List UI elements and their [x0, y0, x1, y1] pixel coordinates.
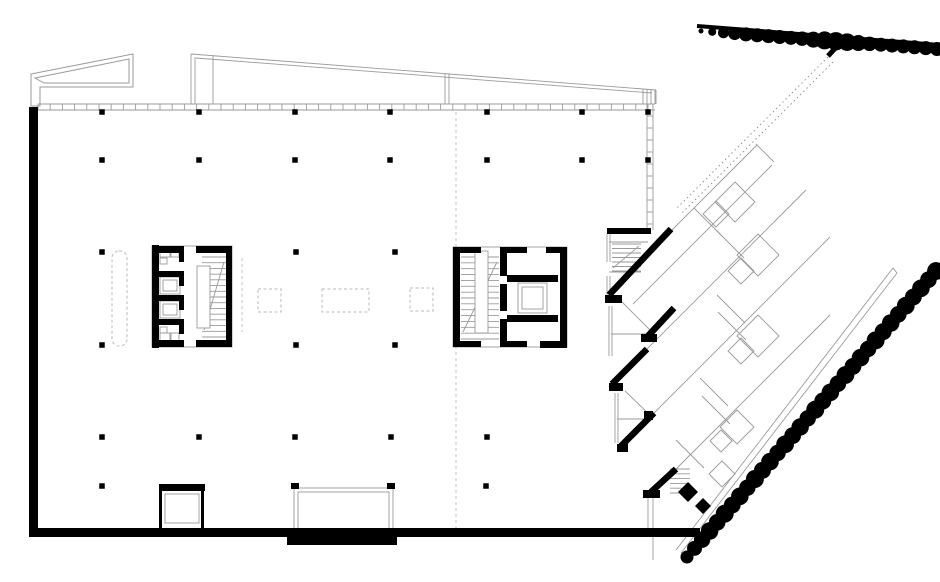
column [392, 249, 398, 255]
thick-walls [29, 107, 700, 545]
column [579, 157, 585, 163]
column [196, 434, 202, 440]
column [484, 109, 490, 115]
tree-row-upper [697, 26, 940, 56]
stair-rails [197, 251, 488, 333]
column [387, 109, 393, 115]
column [292, 434, 298, 440]
column [99, 342, 105, 348]
column [392, 342, 398, 348]
floor-plan [0, 0, 940, 582]
column [484, 157, 490, 163]
column [293, 342, 299, 348]
column [579, 109, 585, 115]
column [196, 109, 202, 115]
stair-treads [202, 244, 690, 493]
dotted-sightline [676, 57, 833, 214]
window-band-ticks [38, 104, 653, 224]
column [388, 434, 394, 440]
clerestory-roof [31, 54, 133, 106]
column [99, 434, 105, 440]
column [484, 434, 490, 440]
column [292, 109, 298, 115]
column [196, 157, 202, 163]
column [387, 157, 393, 163]
column [99, 157, 105, 163]
column [645, 109, 651, 115]
column [645, 157, 651, 163]
column [99, 483, 105, 489]
column [483, 483, 489, 489]
annex-pods-solid [678, 482, 711, 514]
column [293, 249, 299, 255]
column [99, 249, 105, 255]
column [292, 157, 298, 163]
column [99, 109, 105, 115]
floor-plan-drawing [0, 0, 940, 582]
